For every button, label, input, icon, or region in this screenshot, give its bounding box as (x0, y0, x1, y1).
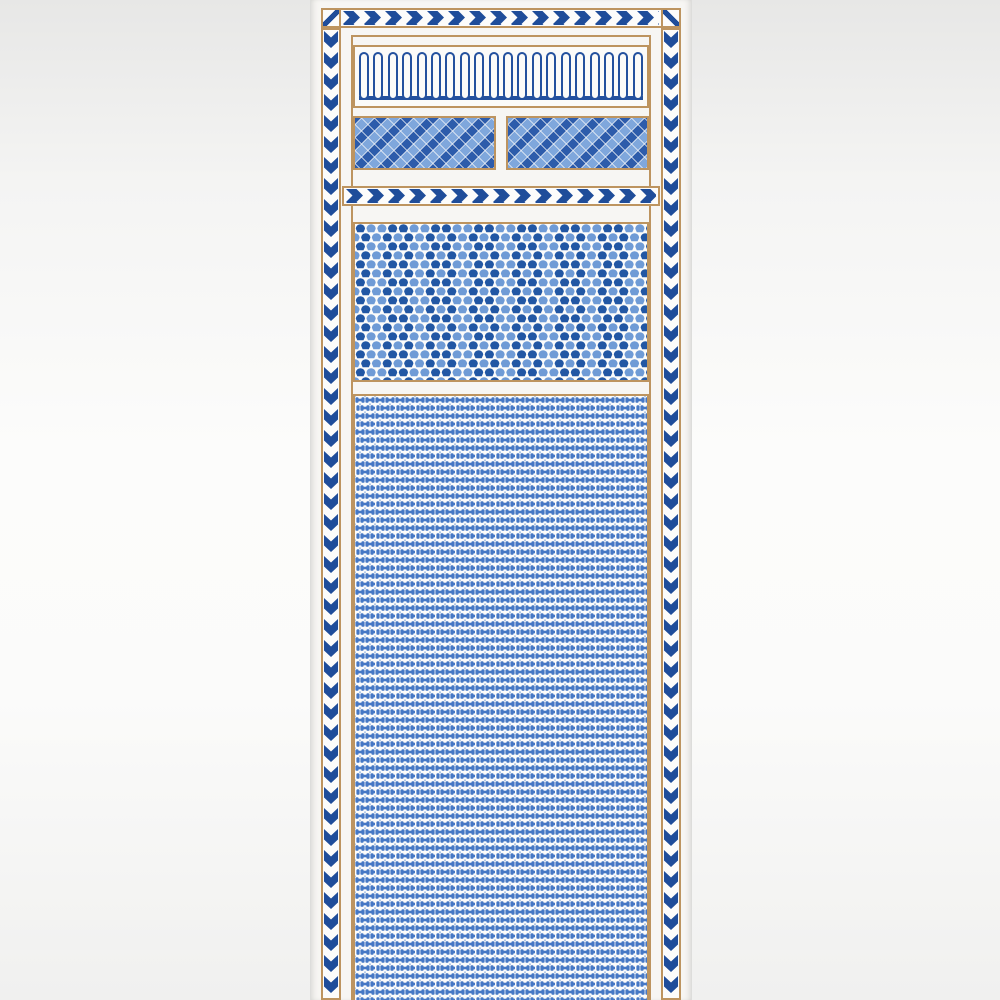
diamond-check-panel-left (353, 116, 496, 170)
chevron-divider-band (342, 186, 660, 206)
chevron-right-pattern (343, 11, 659, 25)
diamond-panels-row (353, 116, 649, 170)
chevron-border-top (321, 8, 681, 28)
arcade-frieze-panel (353, 45, 649, 108)
chevron-right-pattern (346, 189, 656, 203)
chevron-down-pattern (664, 31, 678, 997)
lower-content-frame (351, 206, 651, 1000)
arcade-capsule (633, 52, 643, 100)
arcade-capsule (517, 52, 527, 100)
arcade-capsule (561, 52, 571, 100)
wallpaper-panel (310, 0, 692, 1000)
arcade-capsule (388, 52, 398, 100)
arcade-capsule (402, 52, 412, 100)
arcade-capsule (489, 52, 499, 100)
arcade-capsule (417, 52, 427, 100)
bone-pattern-field (353, 394, 649, 1000)
arcade-capsule (546, 52, 556, 100)
arcade-capsules (359, 52, 643, 100)
diamond-check-pattern (355, 118, 494, 168)
dumbbell-dot-pattern (355, 396, 647, 1000)
diamond-check-pattern (508, 118, 647, 168)
chevron-border-right (661, 28, 681, 1000)
upper-content-frame (351, 35, 651, 186)
arcade-capsule (532, 52, 542, 100)
scallop-fan-pattern (355, 224, 647, 380)
arcade-capsule (618, 52, 628, 100)
arcade-capsule (590, 52, 600, 100)
border-corner-top-left (321, 8, 341, 28)
arcade-capsule (445, 52, 455, 100)
fan-pattern-panel (353, 222, 649, 382)
arcade-capsule (503, 52, 513, 100)
arcade-capsule (474, 52, 484, 100)
arcade-capsule (373, 52, 383, 100)
photo-background (0, 0, 1000, 1000)
arcade-capsule (604, 52, 614, 100)
chevron-down-pattern (324, 31, 338, 997)
chevron-border-left (321, 28, 341, 1000)
arcade-capsule (460, 52, 470, 100)
border-corner-top-right (661, 8, 681, 28)
arcade-capsule (575, 52, 585, 100)
diamond-check-panel-right (506, 116, 649, 170)
arcade-capsule (359, 52, 369, 100)
arcade-capsule (431, 52, 441, 100)
